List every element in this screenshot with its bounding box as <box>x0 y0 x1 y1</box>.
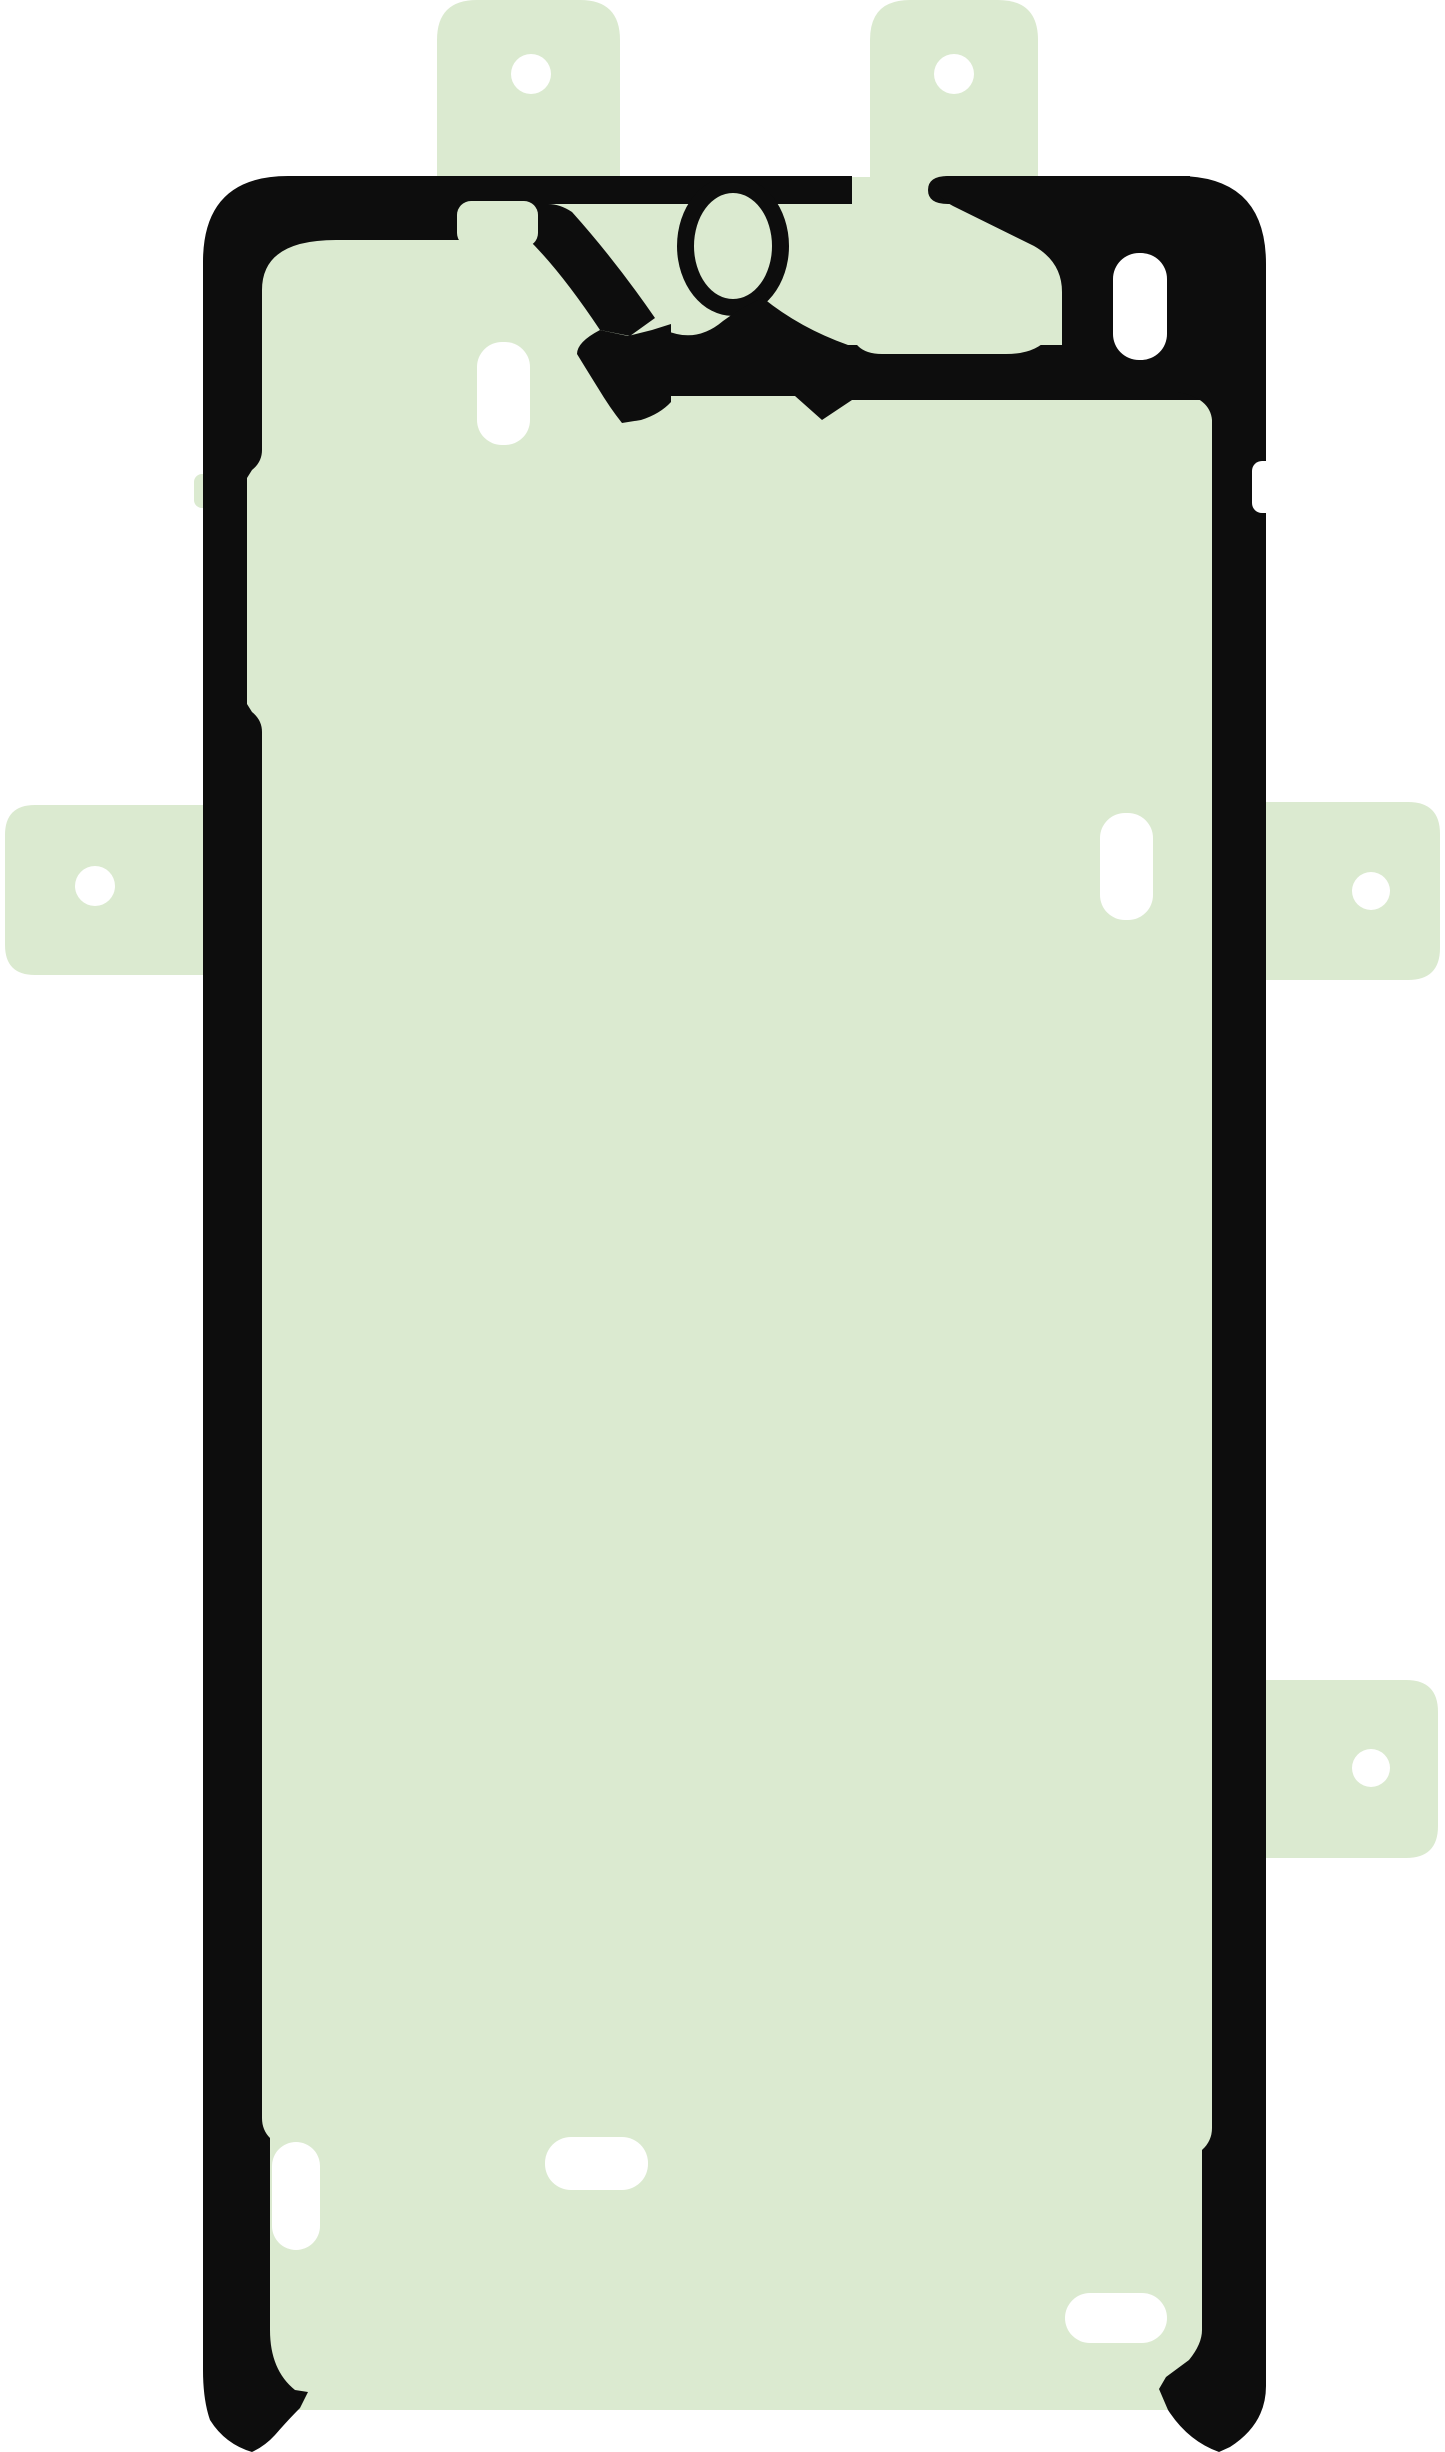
slot-right-upper <box>1100 813 1153 920</box>
pull-tab-right-side <box>1250 802 1440 980</box>
pull-tab-top-right <box>870 0 1038 200</box>
camera-ring-inner <box>694 193 772 299</box>
sheet-body <box>203 177 1265 2410</box>
slot-bottom-left <box>272 2142 320 2250</box>
tab-hole-right-side <box>1352 872 1390 910</box>
pull-tab-right-lower <box>1250 1680 1438 1858</box>
tab-hole-left-side <box>75 866 115 906</box>
top-band-notch <box>457 201 538 247</box>
tab-hole-right-lower <box>1352 1749 1390 1787</box>
slot-bottom-right <box>1065 2293 1167 2343</box>
tab-hole-top-right <box>934 54 974 94</box>
slot-right-hook <box>1113 253 1167 360</box>
tab-hole-top-left <box>511 54 551 94</box>
right-edge-notch <box>1252 461 1276 513</box>
pull-tab-top-left <box>437 0 620 200</box>
product-photo <box>0 0 1445 2452</box>
adhesive-sticker-image <box>0 0 1445 2452</box>
slot-bottom-center <box>545 2137 648 2190</box>
slot-top-left <box>477 342 530 445</box>
